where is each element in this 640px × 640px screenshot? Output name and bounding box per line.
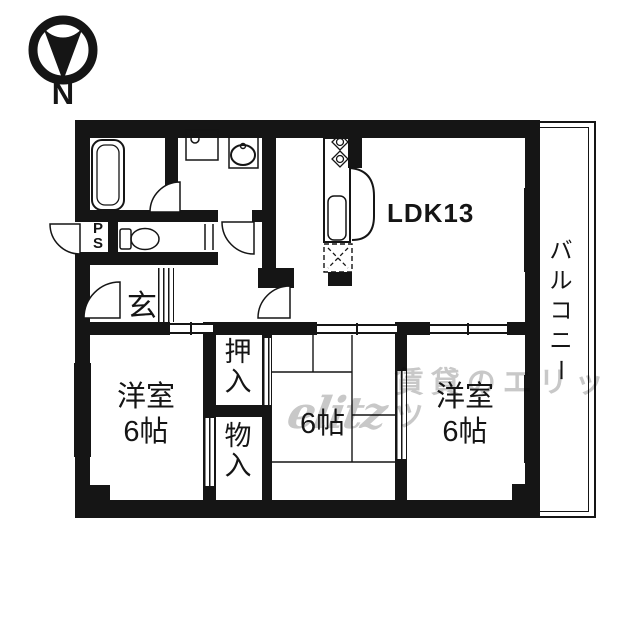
wall xyxy=(203,487,216,504)
balcony-label: バ ル コ ニ ー xyxy=(548,235,574,385)
genkan-divider xyxy=(158,268,174,322)
wall-tick xyxy=(467,323,469,335)
kitchen-sink-icon xyxy=(328,196,346,240)
wall xyxy=(203,322,317,335)
tatami-lines xyxy=(272,335,395,462)
partition-sliding-door xyxy=(395,370,407,460)
wall xyxy=(165,138,178,212)
wall-tick xyxy=(356,323,358,335)
wall-tick xyxy=(141,503,143,515)
room-label-ldk: LDK13 xyxy=(387,198,474,229)
north-label: N xyxy=(46,76,80,112)
washbasin-faucet xyxy=(241,144,246,149)
kitchen-counter xyxy=(324,138,350,242)
wall xyxy=(395,460,407,500)
wall xyxy=(507,322,540,335)
wall xyxy=(348,120,362,168)
room-label-genkan: 玄 xyxy=(127,281,157,325)
wall xyxy=(262,138,276,270)
balcony-window xyxy=(524,188,540,272)
ldk-door-arc xyxy=(258,286,290,318)
bathtub-icon xyxy=(92,140,124,210)
wall xyxy=(262,417,272,500)
wall xyxy=(395,335,407,370)
stove-burner-icon xyxy=(332,151,348,167)
window xyxy=(112,502,176,516)
wall xyxy=(258,268,294,288)
oshiire-sliding-door xyxy=(262,337,272,407)
toilet-tank xyxy=(120,229,131,249)
refrigerator-space-cross xyxy=(328,248,348,268)
refrigerator-space-icon xyxy=(324,244,352,272)
bathtub-inner xyxy=(97,145,119,205)
compass-north-icon xyxy=(22,10,104,86)
toilet-icon xyxy=(131,229,159,250)
wall-tick xyxy=(190,322,192,335)
washbasin-counter xyxy=(229,136,258,168)
closet-oshiire-label: 押入 xyxy=(222,337,254,397)
ps-label: PS xyxy=(88,221,108,251)
wall xyxy=(75,252,218,265)
wall-tick xyxy=(524,221,540,223)
window xyxy=(74,363,91,457)
wall xyxy=(328,272,352,286)
floor-plan: N xyxy=(0,0,640,640)
entrance-door-arc xyxy=(50,224,80,254)
wall-tick xyxy=(524,419,540,421)
west-room-left-label: 洋室6帖 xyxy=(104,380,188,450)
wall xyxy=(262,322,272,337)
wall xyxy=(395,322,430,335)
wall xyxy=(108,222,118,252)
closet-monoire-label: 物入 xyxy=(222,421,254,481)
monoire-sliding-door xyxy=(203,417,216,487)
washroom-door-arc xyxy=(222,222,254,254)
wall xyxy=(252,210,276,222)
toilet-door xyxy=(205,224,213,250)
wall-pillar xyxy=(80,485,110,501)
counter-edge xyxy=(350,168,374,240)
tatami-room-label: 6帖 xyxy=(300,400,345,442)
washbasin-icon xyxy=(231,145,255,165)
wall xyxy=(75,120,540,138)
west-room-right-label: 洋室6帖 xyxy=(423,380,507,450)
wall-pillar xyxy=(512,484,540,501)
